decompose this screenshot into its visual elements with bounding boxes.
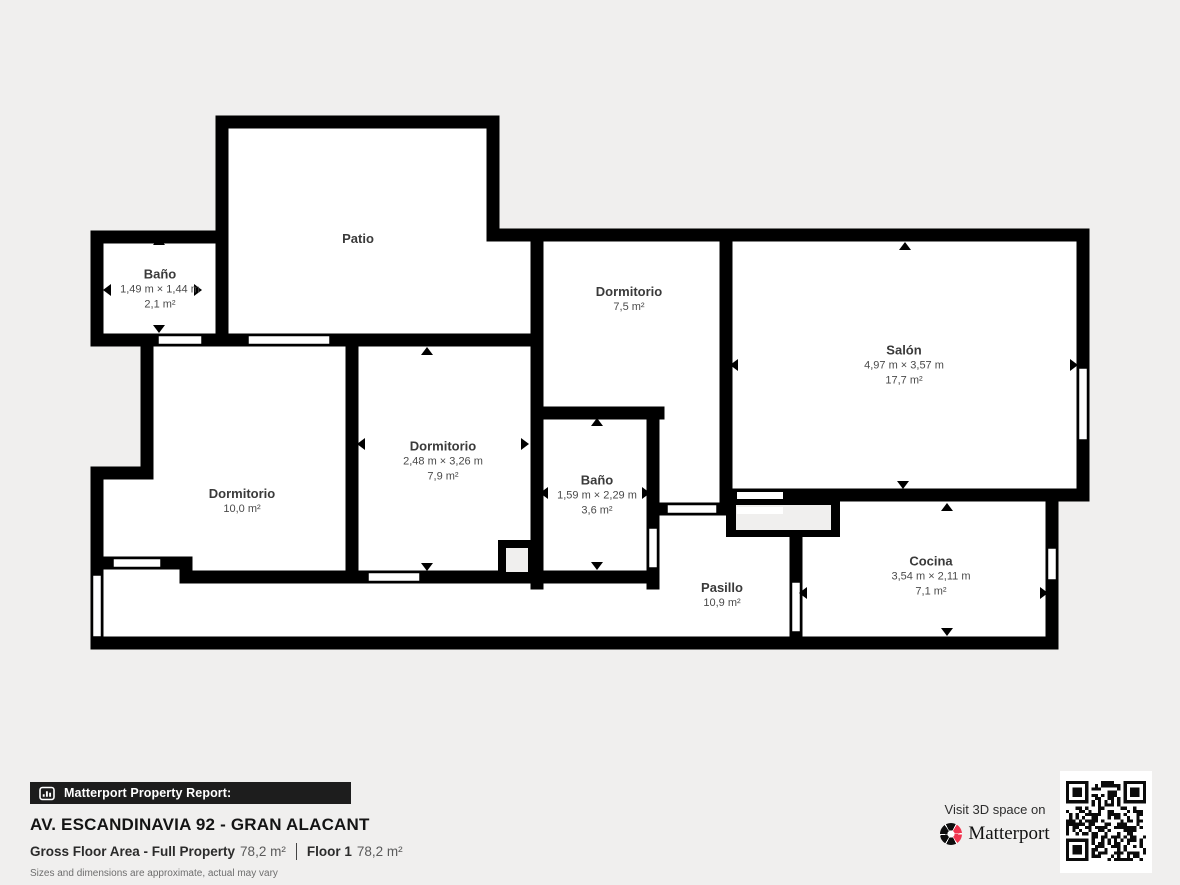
qr-code-pattern [1066,781,1146,861]
floor-area-line: Gross Floor Area - Full Property 78,2 m²… [30,843,403,860]
report-info: Matterport Property Report: AV. ESCANDIN… [30,782,403,879]
gross-area-value: 78,2 m² [240,844,286,859]
matterport-mark-icon [940,823,962,845]
property-report-page: Patio Baño 1,49 m × 1,44 m 2,1 m² Dormit… [0,0,1180,885]
visit-3d-block: Visit 3D space on Matterport [933,802,1057,845]
floor-plan [0,0,1180,885]
building-icon [39,786,55,801]
property-address: AV. ESCANDINAVIA 92 - GRAN ALACANT [30,815,403,835]
floor-plan-outline [97,122,1083,643]
visit-3d-label: Visit 3D space on [933,802,1057,817]
report-bar-label: Matterport Property Report: [64,786,231,800]
matterport-wordmark: Matterport [968,823,1049,845]
divider [296,843,297,860]
floor-value: 78,2 m² [357,844,403,859]
floor-label: Floor 1 [307,844,352,859]
qr-code [1060,771,1152,873]
report-title-bar: Matterport Property Report: [30,782,351,804]
disclaimer-text: Sizes and dimensions are approximate, ac… [30,868,403,879]
matterport-logo: Matterport [933,823,1057,845]
gross-area-label: Gross Floor Area - Full Property [30,844,235,859]
